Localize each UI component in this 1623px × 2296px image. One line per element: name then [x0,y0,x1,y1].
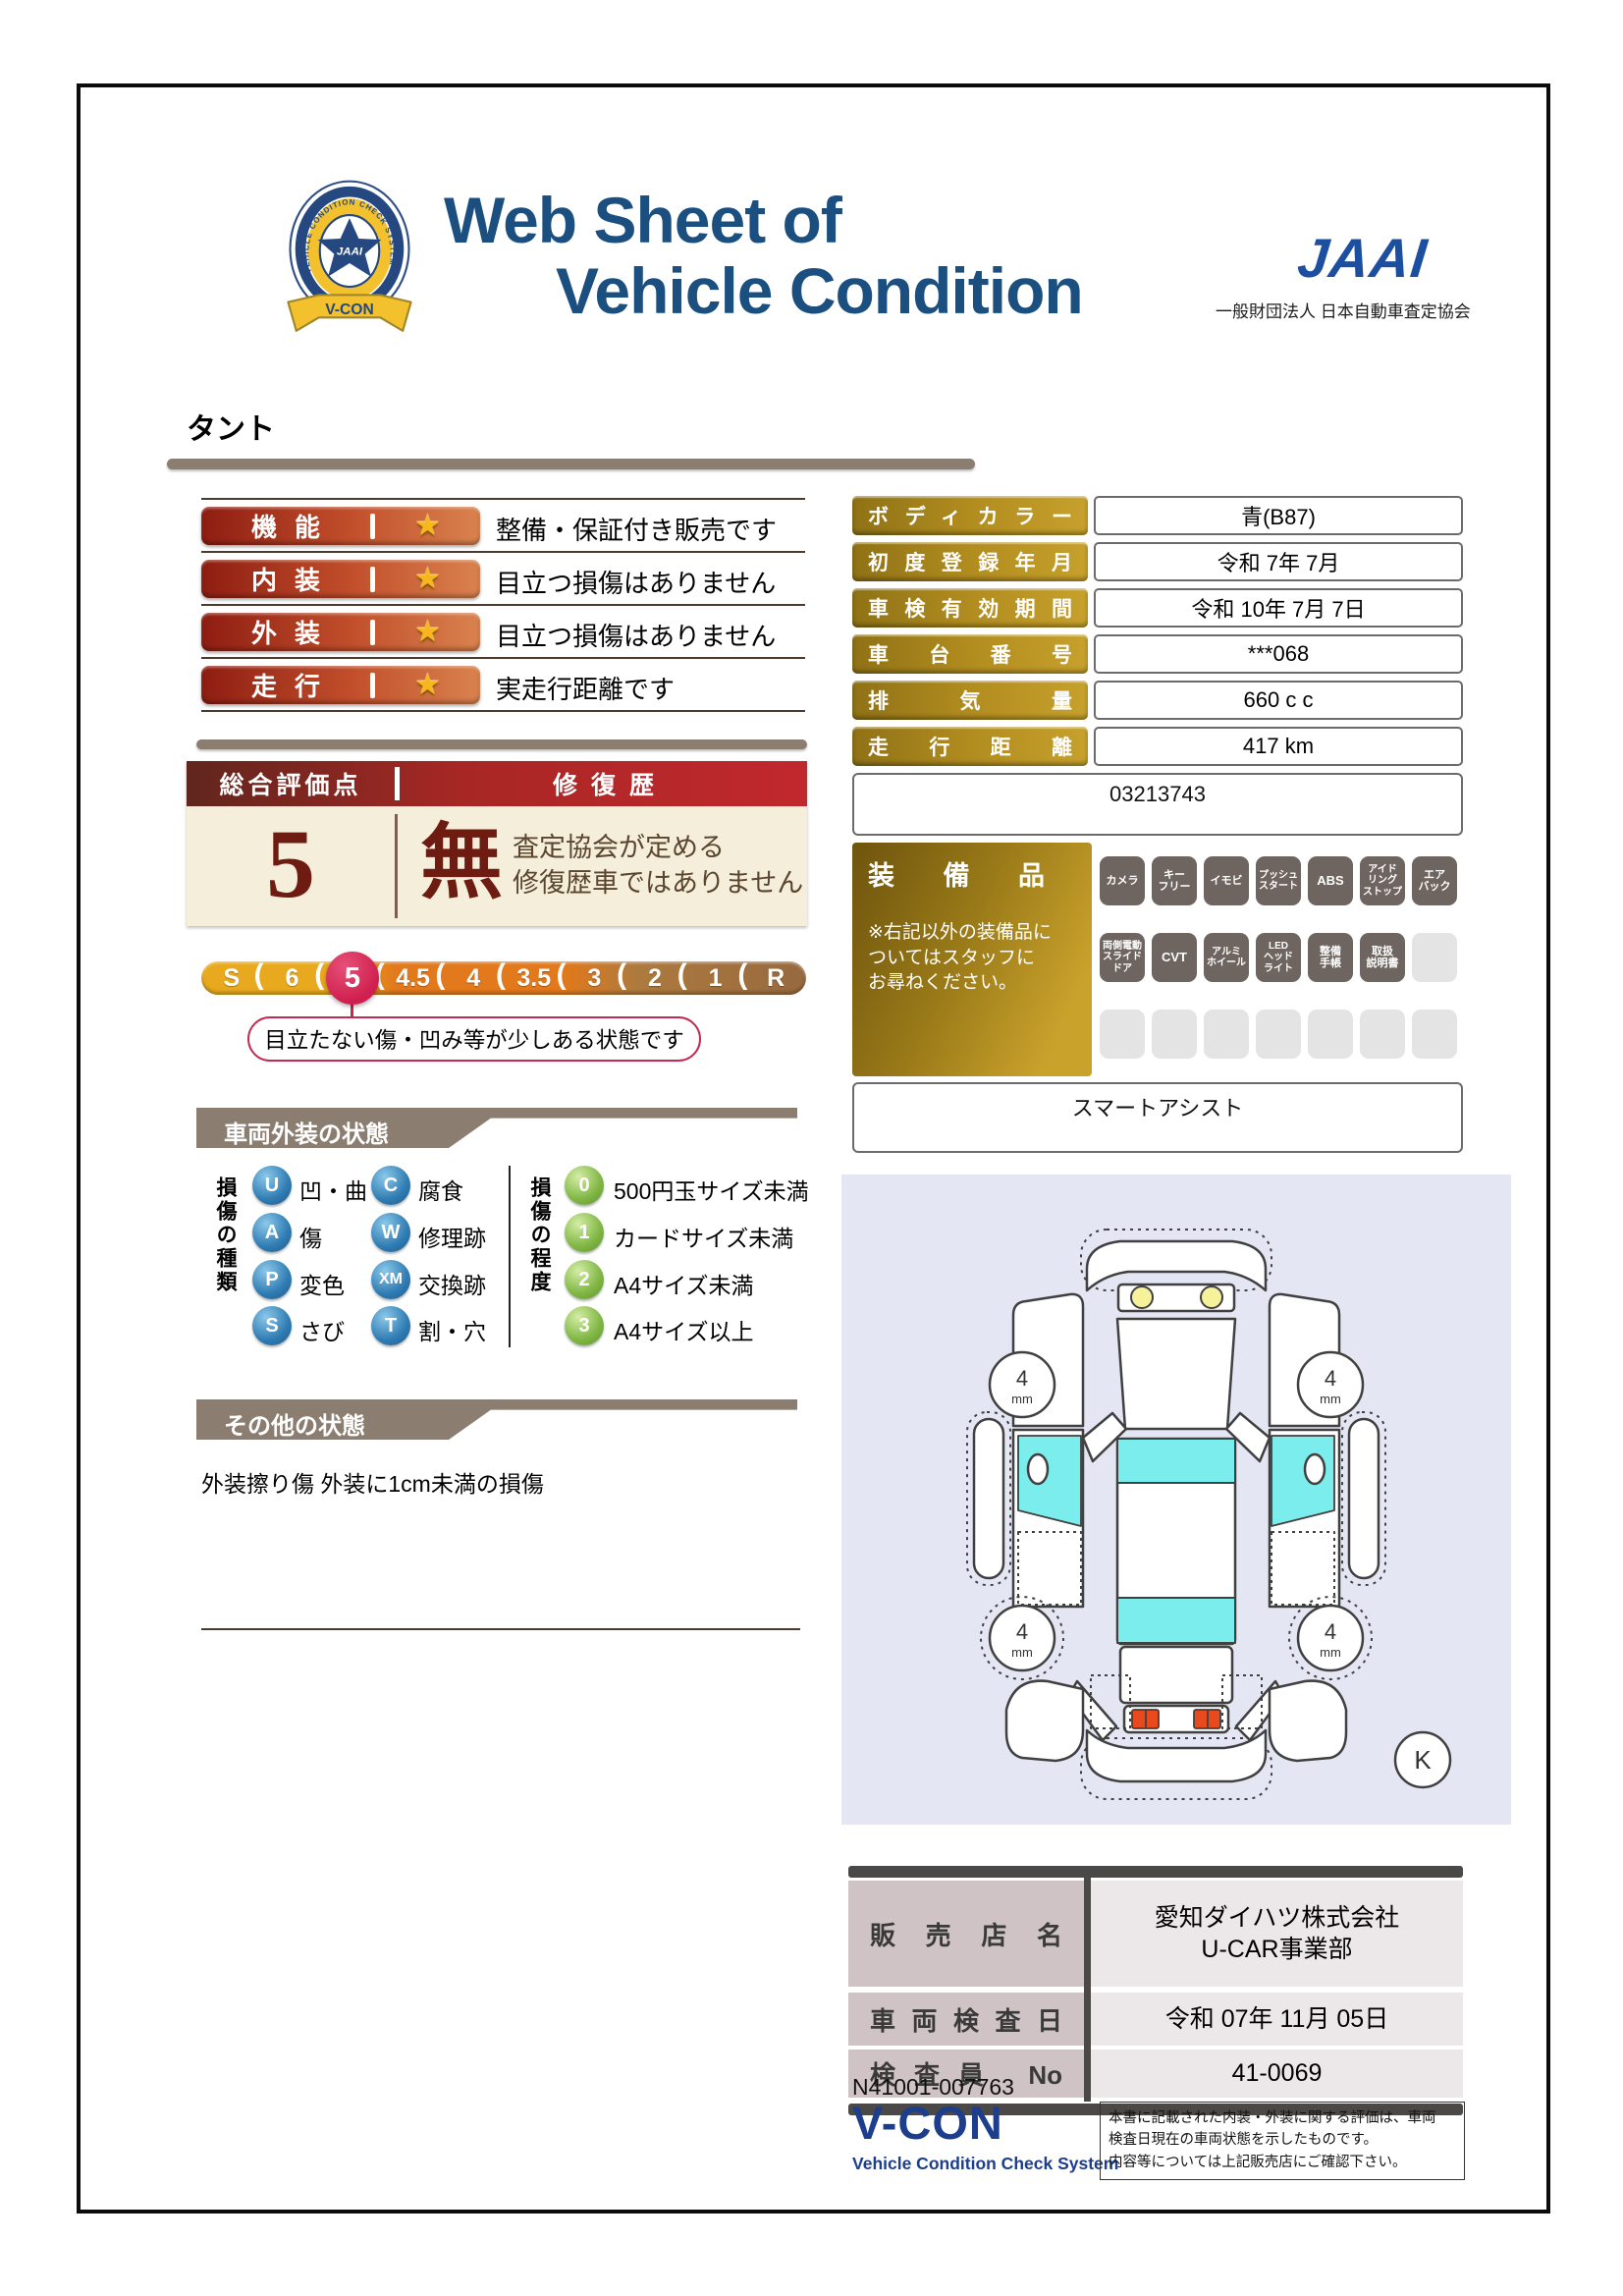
equipment-badge: プッシュ スタート [1256,856,1301,905]
equipment-title: 装備品 [868,854,1045,893]
star-icon: ★ [375,562,480,596]
scale-cell: (4 [443,961,504,995]
headlight-right-icon [1201,1286,1222,1308]
damage-type-code: U [252,1166,292,1205]
left-door-glass [1018,1436,1081,1526]
scale-value: 1 [709,964,723,993]
equipment-badge: アイド リング ストップ [1360,856,1405,905]
rear-window-glass [1117,1598,1235,1643]
info-value: 417 km [1094,727,1463,766]
dealer-value: 41-0069 [1091,2050,1463,2098]
tread-unit: mm [1011,1645,1033,1660]
vertical-divider [395,814,398,918]
equipment-slot-empty [1152,1010,1197,1059]
disclaimer-box: 本書に記載された内装・外装に関する評価は、車両 検査日現在の車両状態を示したもの… [1100,2102,1465,2180]
info-label: 車検有効期間 [852,588,1088,628]
info-label: 排気量 [852,681,1088,720]
damage-type-code: XM [371,1260,410,1299]
equipment-slot-empty [1100,1010,1145,1059]
scale-cell: (3.5 [504,961,565,995]
vehicle-condition-sheet: VEHICLE CONDITION CHECK SYSTEM JAAI V-CO… [0,0,1623,2296]
front-bumper [1087,1241,1266,1290]
dealer-value: 令和 07年 11月 05日 [1091,1993,1463,2046]
equipment-badge: LED ヘッド ライト [1256,933,1301,982]
scale-separator: ( [737,958,747,992]
rating-label: 走行 [201,667,370,703]
star-icon: ★ [375,668,480,702]
info-label: 初度登録年月 [852,542,1088,581]
repair-history-title: 修復歴 [400,766,807,801]
scale-value: 6 [285,964,298,993]
damage-level-code: 2 [565,1260,604,1299]
right-sill [1349,1419,1379,1578]
repair-history-note: 査定協会が定める 修復歴車ではありません [513,830,803,902]
page-title-line1: Web Sheet of [444,183,841,257]
equipment-slot-empty [1412,933,1457,982]
scale-value: 4.5 [396,964,430,993]
equipment-slot-empty [1204,1010,1249,1059]
scale-value: 3.5 [516,964,551,993]
overall-score-header: 総合評価点 修復歴 [187,761,807,806]
scale-separator: ( [557,958,567,992]
damage-level-label: 500円玉サイズ未満 [614,1173,809,1206]
scale-cell-selected: ( 5 [322,961,383,995]
scale-cell: (4.5 [383,961,444,995]
separator-line [201,551,805,553]
separator-line [201,710,805,712]
rating-label: 外装 [201,614,370,650]
tread-value: 4 [1016,1366,1028,1391]
rating-comment: 実走行距離です [496,670,675,706]
damage-types-label: 損傷の種類 [210,1176,240,1294]
scale-separator: ( [435,958,445,992]
rating-comment: 目立つ損傷はありません [496,564,776,600]
damage-type-label: 修理跡 [418,1220,486,1253]
damage-type-label: 交換跡 [418,1267,486,1300]
equipment-badge: 取扱 説明書 [1360,933,1405,982]
equipment-badge: CVT [1152,933,1197,982]
rating-row-mileage: 走行 ★ [201,666,480,704]
legend-divider [509,1166,511,1347]
equipment-badge: ABS [1308,856,1353,905]
equipment-slot-empty [1308,1010,1353,1059]
badge-star-label: JAAI [337,246,363,258]
selected-score-marker: 5 [326,952,379,1005]
jaai-organization: 一般財団法人 日本自動車査定協会 [1216,298,1471,322]
score-description-bubble: 目立たない傷・凹み等が少しある状態です [247,1016,701,1062]
damage-type-code: P [252,1260,292,1299]
equipment-panel: 装備品 ※右記以外の装備品に ついてはスタッフに お尋ねください。 [852,843,1092,1076]
damage-type-label: 割・穴 [418,1313,486,1346]
rating-row-exterior: 外装 ★ [201,613,480,651]
info-value: 660 c c [1094,681,1463,720]
scale-value: 2 [648,964,662,993]
vcon-badge-icon: VEHICLE CONDITION CHECK SYSTEM JAAI V-CO… [278,175,421,350]
vcon-subtitle: Vehicle Condition Check System [852,2154,1118,2174]
rating-row-interior: 内装 ★ [201,560,480,598]
other-condition-text: 外装擦り傷 外装に1cm未満の損傷 [201,1465,544,1499]
separator-line [201,1628,800,1630]
damage-type-label: 変色 [299,1267,345,1300]
info-value: 令和 10年 7月 7日 [1094,588,1463,628]
damage-level-code: 3 [565,1306,604,1345]
damage-levels-label: 損傷の程度 [524,1176,554,1294]
tread-value: 4 [1325,1366,1336,1391]
separator-line [201,498,805,500]
scale-cell: (2 [624,961,685,995]
damage-type-code: S [252,1306,292,1345]
scale-separator: ( [617,958,626,992]
scale-separator: ( [314,958,324,992]
dealer-label: 車両検査日 [848,1993,1084,2046]
scale-separator: ( [677,958,687,992]
divider-bar [167,459,975,469]
score-scale: S (6 ( 5 (4.5 (4 (3.5 (3 (2 (1 (R [201,961,806,995]
rear-bumper [1087,1730,1266,1781]
damage-type-code: W [371,1213,410,1252]
rating-label: 内装 [201,561,370,597]
equipment-badge: 整備 手帳 [1308,933,1353,982]
headlight-left-icon [1131,1286,1153,1308]
tread-unit: mm [1320,1392,1341,1406]
scale-cell: (1 [685,961,746,995]
damage-level-code: 0 [565,1166,604,1205]
left-sill [974,1419,1003,1578]
right-door-glass [1271,1436,1334,1526]
scale-value: 4 [466,964,480,993]
reference-number-box: 03213743 [852,773,1463,836]
car-diagram-svg: 4 mm 4 mm 4 mm 4 mm K [841,1175,1511,1825]
dealer-value: 愛知ダイハツ株式会社 U-CAR事業部 [1091,1881,1463,1987]
tread-unit: mm [1011,1392,1033,1406]
jaai-logo: JAAI [1295,226,1431,290]
damage-type-label: 凹・曲 [299,1173,367,1206]
equipment-badge: キー フリー [1152,856,1197,905]
damage-level-label: A4サイズ以上 [614,1313,753,1346]
table-column-divider [1084,1878,1091,2102]
info-label: 走行距離 [852,727,1088,766]
damage-type-label: 傷 [299,1220,322,1253]
scale-cell: S [201,961,262,995]
car-damage-diagram: 4 mm 4 mm 4 mm 4 mm K [841,1175,1511,1825]
diagram-marker-label: K [1414,1745,1432,1775]
repair-history-value: 無 [412,806,511,926]
equipment-badge: イモビ [1204,856,1249,905]
rating-row-function: 機能 ★ [201,507,480,545]
equipment-slot-empty [1256,1010,1301,1059]
star-icon: ★ [375,509,480,543]
scale-cell: (6 [262,961,323,995]
rating-comment: 整備・保証付き販売です [496,511,777,547]
equipment-slot-empty [1360,1010,1405,1059]
equipment-slot-empty [1412,1010,1457,1059]
scale-value: S [223,964,240,993]
equipment-badge: カメラ [1100,856,1145,905]
rating-comment: 目立つ損傷はありません [496,617,776,653]
dealer-label: 販売店名 [848,1881,1084,1987]
damage-type-code: T [371,1306,410,1345]
tread-value: 4 [1016,1619,1028,1644]
scale-separator: ( [496,958,506,992]
trunk-panel [1120,1647,1232,1703]
info-value: ***068 [1094,634,1463,674]
hood-panel [1117,1319,1235,1429]
windshield-glass [1117,1439,1235,1483]
overall-score-body: 5 無 査定協会が定める 修復歴車ではありません [187,806,807,926]
vehicle-name: タント [187,405,275,448]
equipment-note: ※右記以外の装備品に ついてはスタッフに お尋ねください。 [868,920,1076,996]
separator-line [201,657,805,659]
left-rear-quarter [1006,1681,1083,1761]
overall-score-title: 総合評価点 [187,766,395,801]
left-mirror-icon [1028,1454,1048,1484]
rating-label: 機能 [201,508,370,544]
tread-unit: mm [1320,1645,1341,1660]
extra-equipment-box: スマートアシスト [852,1082,1463,1153]
scale-value: R [767,964,784,993]
scale-value: 3 [587,964,601,993]
info-label: 車台番号 [852,634,1088,674]
equipment-badge: エア バック [1412,856,1457,905]
damage-type-code: C [371,1166,410,1205]
separator-line [201,604,805,606]
damage-type-label: さび [299,1313,345,1346]
tread-value: 4 [1325,1619,1336,1644]
right-rear-quarter [1270,1681,1346,1761]
equipment-badge: 両側電動 スライド ドア [1100,933,1145,982]
divider-bar [196,739,807,749]
info-value: 令和 7年 7月 [1094,542,1463,581]
damage-type-code: A [252,1213,292,1252]
page-title-line2: Vehicle Condition [556,253,1083,328]
damage-type-label: 腐食 [418,1173,463,1206]
scale-cell: (R [745,961,806,995]
overall-score-value: 5 [187,806,395,926]
scale-separator: ( [254,958,264,992]
equipment-badge: アルミ ホイール [1204,933,1249,982]
scale-cell: (3 [565,961,625,995]
badge-ribbon-label: V-CON [325,301,373,318]
damage-level-label: A4サイズ未満 [614,1267,753,1300]
star-icon: ★ [375,615,480,649]
damage-level-code: 1 [565,1213,604,1252]
table-top-bar [848,1866,1463,1878]
right-mirror-icon [1305,1454,1325,1484]
info-label: ボディカラー [852,496,1088,535]
vcon-logo: V-CON [852,2096,1003,2150]
damage-level-label: カードサイズ未満 [614,1220,793,1253]
info-value: 青(B87) [1094,496,1463,535]
